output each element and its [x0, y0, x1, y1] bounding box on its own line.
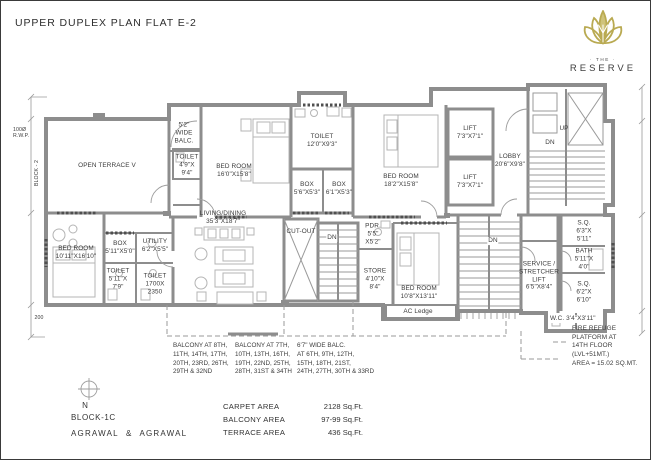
label-open-terrace: OPEN TERRACE V	[78, 162, 136, 170]
label-lift-2: LIFT 7'3"X7'1"	[457, 174, 483, 190]
label-service-lift: SERVICE / STRETCHER LIFT 6'5"X8'4"	[519, 260, 559, 291]
label-toilet-49: TOILET 4'9"X 9'4"	[176, 153, 199, 176]
label-bedroom-16: BED ROOM 16'0"X15'8"	[216, 163, 252, 179]
label-bedroom-18: BED ROOM 18'2"X15'8"	[383, 173, 419, 189]
label-utility: UTILITY 6'2"X5'5"	[142, 238, 168, 254]
floor-plan-drawing	[1, 1, 651, 460]
label-box-61: BOX 6'1"X5'3"	[326, 181, 352, 197]
label-bath: BATH 5'11"X 4'0"	[575, 247, 594, 270]
label-lift-1: LIFT 7'3"X7'1"	[457, 125, 483, 141]
label-box-56: BOX 5'6"X5'3"	[294, 181, 320, 197]
label-living-dining: LIVING/DINING 35'3"X18'7"	[200, 210, 246, 226]
label-dn-mid: DN	[326, 234, 337, 242]
firm-label: AGRAWAL & AGRAWAL	[71, 429, 187, 438]
note-balcony-7th: BALCONY AT 7TH, 10TH, 13TH, 16TH, 19TH, …	[235, 342, 292, 377]
label-lobby: LOBBY 20'6"X9'8"	[495, 153, 525, 169]
label-fire-refuge: FIRE REFUGE PLATFORM AT 14TH FLOOR (LVL+…	[572, 325, 650, 368]
label-ac-ledge: AC Ledge	[403, 308, 432, 316]
label-toilet-1700: TOILET 1700X 2350	[144, 272, 167, 295]
north-compass-icon	[78, 378, 100, 400]
note-wide-balc-6th: 6'7" WIDE BALC. AT 6TH, 9TH, 12TH, 15TH,…	[297, 342, 374, 377]
label-toilet-12: TOILET 12'0"X9'3"	[307, 133, 337, 149]
terrace-area-value: 436 Sq.Ft.	[293, 428, 363, 437]
label-dn-right: DN	[487, 237, 498, 245]
label-wide-balc: 5'2" WIDE BALC.	[175, 121, 194, 144]
label-cut-out: CUT-OUT	[286, 228, 315, 236]
label-bedroom-108: BED ROOM 10'8"X13'11"	[401, 285, 438, 301]
label-dn-top: DN	[545, 139, 554, 147]
north-label: N	[82, 401, 88, 410]
label-wc: W.C. 3'4"X3'11"	[549, 315, 597, 323]
label-store: STORE 4'10"X 8'4"	[364, 267, 386, 290]
label-pdr: PDR. 5'5" X5'2"	[365, 222, 381, 245]
label-dim-200: 200	[35, 315, 44, 321]
label-toilet-511: TOILET 5'11"X 7'9"	[107, 267, 130, 290]
balcony-area-value: 97-99 Sq.Ft.	[293, 415, 363, 424]
label-sq-62: S.Q. 6'2"X 6'10"	[576, 280, 591, 303]
label-block-2: BLOCK - 2	[34, 160, 40, 186]
floor-plan-sheet: UPPER DUPLEX PLAN FLAT E-2 · THE · RESER…	[0, 0, 651, 460]
carpet-area-value: 2128 Sq.Ft.	[293, 402, 363, 411]
label-up: UP	[559, 125, 568, 133]
label-bedroom-1011: BED ROOM 10'11"X16'10"	[56, 245, 97, 261]
block-label: BLOCK-1C	[71, 413, 116, 422]
note-balcony-8th: BALCONY AT 8TH, 11TH, 14TH, 17TH, 20TH, …	[173, 342, 229, 377]
label-box-511: BOX 5'11"X5'0"	[105, 240, 135, 256]
label-rwp: 100Ø R.W.P.	[13, 127, 29, 140]
label-sq-63: S.Q. 6'3"X 5'11"	[576, 219, 591, 242]
